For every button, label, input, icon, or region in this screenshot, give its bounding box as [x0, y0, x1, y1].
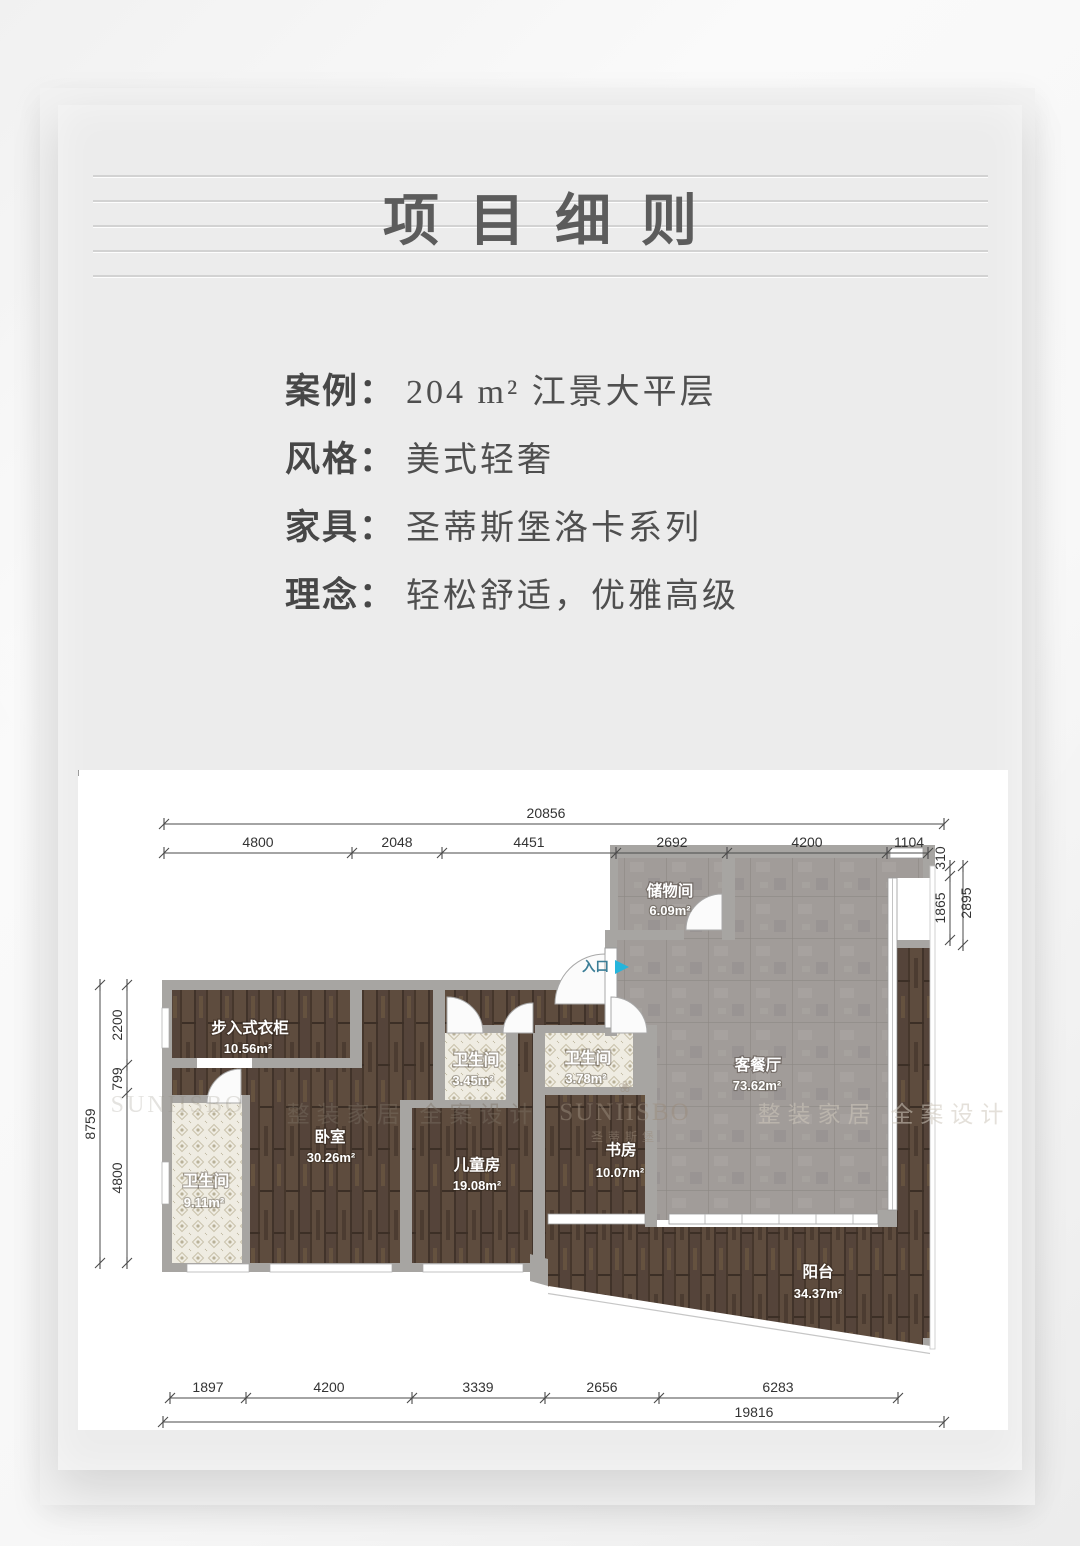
- dim-top-seg: 1104: [894, 834, 924, 850]
- dim-top-seg: 4800: [242, 834, 273, 850]
- info-value: 204 m² 江景大平层: [406, 364, 717, 413]
- room-area-storage: 6.09m²: [649, 903, 691, 918]
- content-card: 项目细则 案例： 204 m² 江景大平层 风格： 美式轻奢 家具： 圣蒂斯堡洛…: [58, 105, 1022, 1470]
- info-row-concept: 理念： 轻松舒适，优雅高级: [285, 567, 739, 635]
- dim-top-seg: 4200: [791, 834, 822, 850]
- info-label: 理念：: [285, 567, 396, 618]
- room-label-study: 书房: [605, 1140, 636, 1159]
- room-label-kids: 儿童房: [453, 1155, 501, 1174]
- info-label: 案例：: [285, 363, 396, 414]
- room-label-bath-911: 卫生间: [183, 1171, 230, 1190]
- room-area-bath-378: 3.78m²: [565, 1071, 607, 1086]
- watermark-brand: SUNIISBO: [559, 1099, 690, 1126]
- info-value: 美式轻奢: [406, 432, 554, 481]
- room-label-storage: 储物间: [646, 881, 694, 900]
- page-title: 项目细则: [58, 189, 1022, 255]
- info-label: 家具：: [285, 499, 396, 550]
- dim-left-seg: 799: [109, 1067, 125, 1091]
- watermark-slogan-right: 整装家居 全案设计: [758, 1102, 1008, 1127]
- room-area-living: 73.62m²: [733, 1078, 782, 1093]
- room-area-kids: 19.08m²: [453, 1178, 502, 1193]
- room-label-bath-378: 卫生间: [565, 1048, 612, 1067]
- watermark-slogan-left: 整装家居 全案设计: [287, 1102, 540, 1127]
- room-area-bath-345: 3.45m²: [452, 1073, 494, 1088]
- dim-left-total: 8759: [82, 1108, 98, 1139]
- dim-bottom-total: 19816: [735, 1404, 774, 1420]
- info-row-style: 风格： 美式轻奢: [285, 431, 739, 499]
- room-label-bath-345: 卫生间: [453, 1050, 500, 1069]
- dim-bottom-seg: 4200: [313, 1379, 344, 1395]
- room-area-balcony: 34.37m²: [794, 1286, 843, 1301]
- dim-top-seg: 2048: [381, 834, 412, 850]
- dim-top-seg: 4451: [513, 834, 544, 850]
- room-label-bedroom: 卧室: [314, 1127, 345, 1146]
- info-row-case: 案例： 204 m² 江景大平层: [285, 363, 739, 431]
- dim-bottom-seg: 6283: [762, 1379, 793, 1395]
- project-info: 案例： 204 m² 江景大平层 风格： 美式轻奢 家具： 圣蒂斯堡洛卡系列 理…: [285, 363, 739, 635]
- room-area-bedroom: 30.26m²: [307, 1150, 356, 1165]
- dim-top-seg: 2692: [656, 834, 687, 850]
- divider-line: [93, 275, 988, 277]
- info-row-furniture: 家具： 圣蒂斯堡洛卡系列: [285, 499, 739, 567]
- info-label: 风格：: [285, 431, 396, 482]
- dim-right-seg: 310: [932, 846, 948, 870]
- room-label-closet: 步入式衣柜: [211, 1018, 289, 1037]
- dim-left-seg: 4800: [109, 1162, 125, 1193]
- floorplan-panel: SUNIISBO 整装家居 全案设计 ❀ SUNIISBO 圣蒂斯堡 整装家居 …: [78, 770, 1008, 1430]
- dim-bottom-seg: 1897: [192, 1379, 223, 1395]
- dim-right-seg: 1865: [932, 892, 948, 923]
- divider-line: [93, 175, 988, 177]
- room-area-closet: 10.56m²: [224, 1041, 273, 1056]
- dim-left-seg: 2200: [109, 1009, 125, 1040]
- dim-bottom-seg: 2656: [586, 1379, 617, 1395]
- room-label-balcony: 阳台: [802, 1262, 833, 1281]
- dim-bottom-seg: 3339: [462, 1379, 493, 1395]
- dim-top-total: 20856: [527, 805, 566, 821]
- entrance-label: 入口: [582, 959, 609, 974]
- room-area-study: 10.07m²: [596, 1165, 645, 1180]
- room-area-bath-911: 9.11m²: [184, 1195, 225, 1210]
- floorplan-svg: SUNIISBO 整装家居 全案设计 ❀ SUNIISBO 圣蒂斯堡 整装家居 …: [78, 770, 1008, 1430]
- dim-right-total: 2895: [958, 887, 974, 918]
- info-value: 圣蒂斯堡洛卡系列: [406, 500, 702, 549]
- room-label-living: 客餐厅: [735, 1055, 782, 1074]
- info-value: 轻松舒适，优雅高级: [406, 568, 739, 617]
- watermark-flower-icon: ❀: [618, 1079, 631, 1096]
- watermark-brand-left: SUNIISBO: [111, 1092, 246, 1118]
